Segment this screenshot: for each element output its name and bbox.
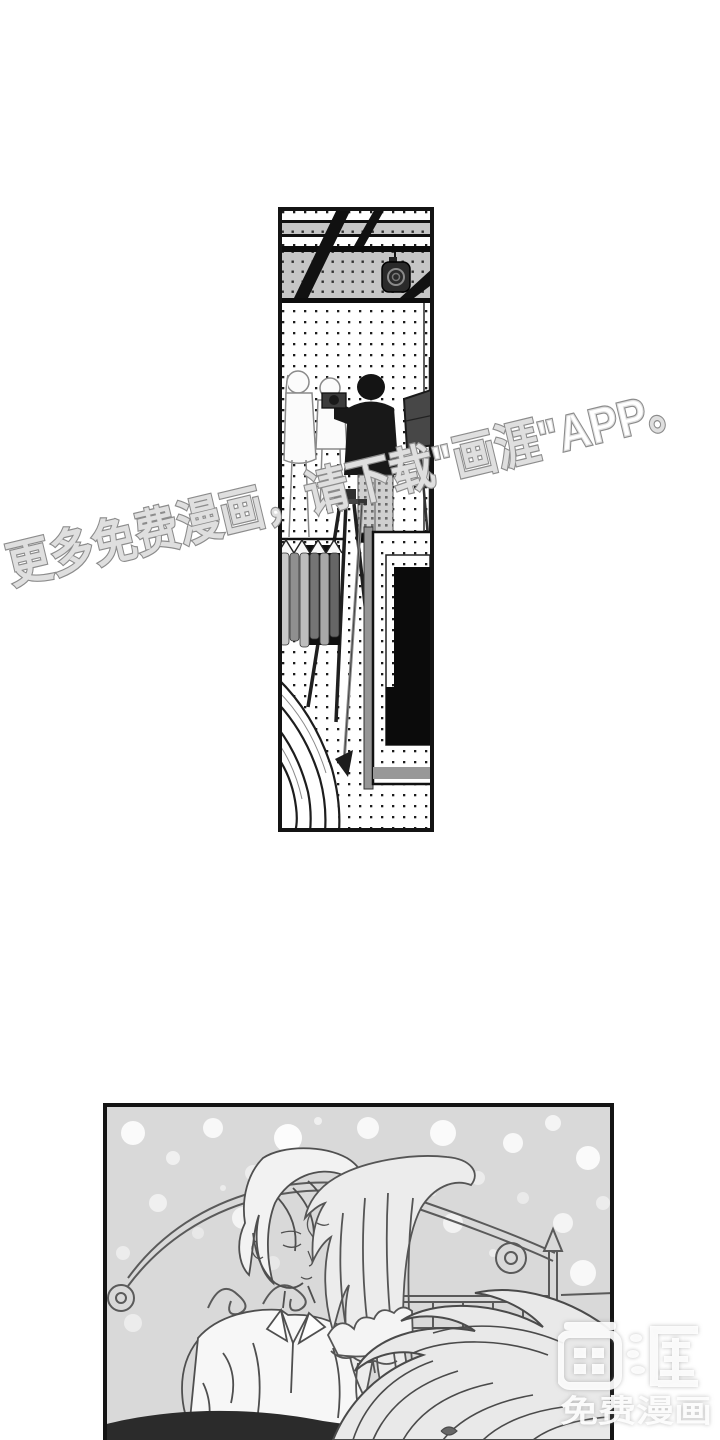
studio-panel [278, 207, 434, 832]
studio-ceiling [278, 207, 434, 303]
ya-glyph-icon [627, 1326, 698, 1387]
clothes-rack [278, 539, 344, 647]
logo-tagline: 免费漫画 [560, 1394, 712, 1429]
hua-glyph-icon [560, 1322, 618, 1386]
manga-reader-page: 更多免费漫画，请下载"画涯"APP。 [0, 0, 720, 1440]
backdrop-frame [364, 527, 434, 789]
huaya-logo-art: 免费漫画 [558, 1316, 720, 1430]
bedroom-panel [103, 1103, 614, 1440]
bedroom-panel-art [103, 1103, 614, 1440]
huaya-logo: 免费漫画 [558, 1316, 720, 1430]
studio-panel-art [278, 207, 434, 832]
